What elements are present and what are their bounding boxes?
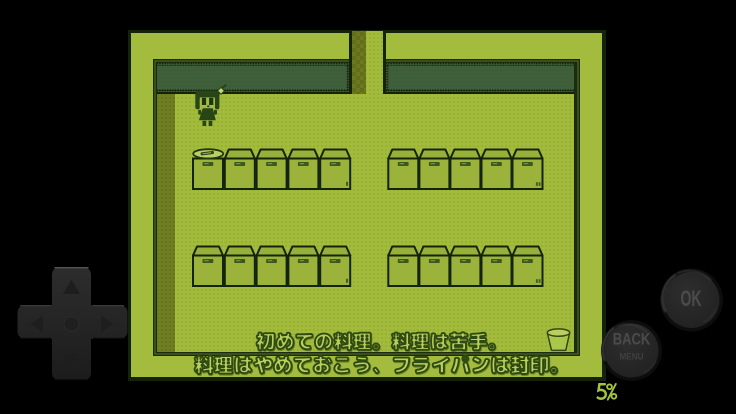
svg-text:OK: OK [681,286,702,311]
svg-text:BACK: BACK [613,331,651,349]
svg-text:MENU: MENU [620,352,644,363]
